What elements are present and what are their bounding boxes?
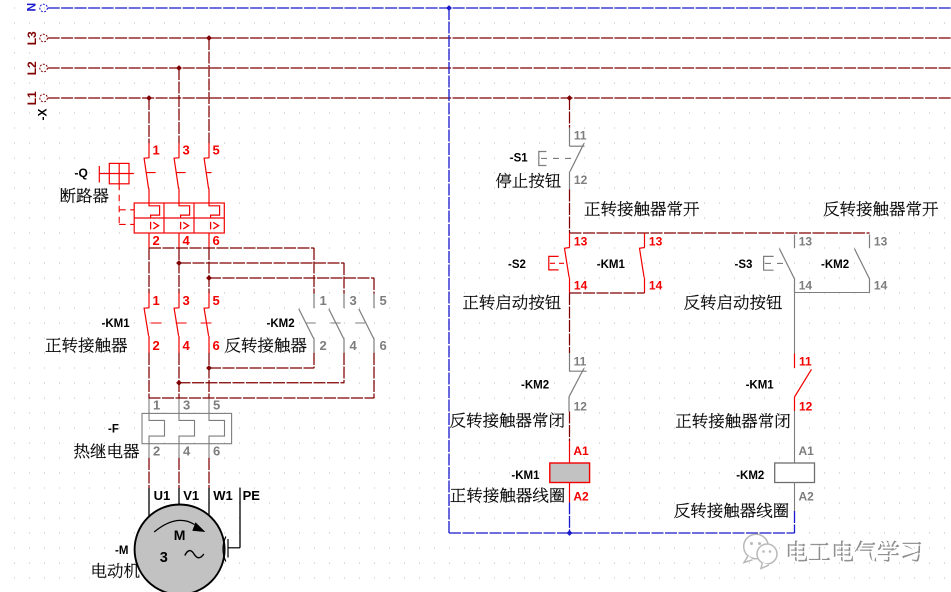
svg-text:L2: L2 — [25, 61, 39, 75]
svg-text:3: 3 — [183, 143, 190, 158]
svg-text:L1: L1 — [25, 91, 39, 105]
svg-text:-F: -F — [108, 424, 119, 436]
svg-text:-KM1: -KM1 — [511, 470, 540, 482]
svg-text:2: 2 — [320, 338, 327, 353]
svg-text:-KM1: -KM1 — [746, 380, 775, 392]
svg-text:3: 3 — [350, 293, 357, 308]
svg-text:1: 1 — [153, 143, 160, 158]
svg-text:A2: A2 — [799, 489, 815, 503]
svg-text:11: 11 — [799, 354, 812, 368]
svg-text:W1: W1 — [213, 488, 233, 503]
svg-text:11: 11 — [574, 354, 587, 368]
svg-text:-KM2: -KM2 — [736, 470, 764, 482]
svg-text:3: 3 — [160, 550, 168, 566]
svg-text:6: 6 — [213, 233, 220, 248]
svg-text:PE: PE — [243, 488, 261, 503]
svg-text:V1: V1 — [183, 488, 199, 503]
svg-text:L3: L3 — [25, 31, 39, 45]
svg-text:4: 4 — [183, 233, 191, 248]
svg-text:14: 14 — [649, 278, 663, 292]
svg-text:5: 5 — [380, 293, 387, 308]
svg-text:N: N — [25, 3, 39, 12]
svg-text:U1: U1 — [154, 488, 171, 503]
svg-text:12: 12 — [574, 399, 588, 413]
svg-text:6: 6 — [213, 444, 220, 459]
svg-text:A2: A2 — [573, 489, 589, 503]
svg-text:-KM2: -KM2 — [821, 259, 849, 271]
svg-text:M: M — [174, 527, 186, 543]
svg-text:5: 5 — [213, 397, 220, 412]
svg-text:-KM2: -KM2 — [521, 380, 549, 392]
svg-text:14: 14 — [574, 278, 588, 292]
svg-text:2: 2 — [153, 338, 160, 353]
svg-text:4: 4 — [183, 338, 191, 353]
svg-text:12: 12 — [574, 173, 588, 187]
svg-text:-KM1: -KM1 — [102, 318, 131, 330]
svg-text:11: 11 — [574, 129, 587, 143]
svg-text:1: 1 — [153, 293, 160, 308]
svg-text:2: 2 — [153, 233, 160, 248]
svg-text:-Q: -Q — [75, 166, 88, 180]
svg-text:2: 2 — [153, 444, 160, 459]
svg-text:-M: -M — [115, 545, 128, 557]
svg-text:-X: -X — [36, 109, 50, 121]
svg-text:1: 1 — [153, 397, 160, 412]
svg-text:1: 1 — [320, 293, 327, 308]
svg-text:3: 3 — [183, 293, 190, 308]
svg-text:A1: A1 — [799, 444, 815, 458]
svg-text:3: 3 — [183, 397, 190, 412]
svg-text:4: 4 — [183, 444, 191, 459]
svg-text:14: 14 — [799, 278, 813, 292]
svg-text:13: 13 — [874, 234, 888, 248]
svg-text:-KM1: -KM1 — [597, 259, 626, 271]
svg-text:-S3: -S3 — [735, 259, 753, 271]
svg-text:12: 12 — [799, 399, 813, 413]
svg-text:5: 5 — [213, 143, 220, 158]
svg-text:4: 4 — [350, 338, 358, 353]
svg-text:6: 6 — [380, 338, 387, 353]
svg-text:-S2: -S2 — [508, 259, 526, 271]
svg-text:13: 13 — [799, 234, 813, 248]
svg-text:6: 6 — [213, 338, 220, 353]
svg-text:-S1: -S1 — [510, 153, 529, 165]
svg-text:14: 14 — [874, 278, 888, 292]
svg-text:A1: A1 — [573, 444, 589, 458]
svg-text:-KM2: -KM2 — [267, 318, 295, 330]
svg-text:5: 5 — [213, 293, 220, 308]
svg-text:13: 13 — [649, 234, 663, 248]
svg-text:13: 13 — [574, 234, 588, 248]
